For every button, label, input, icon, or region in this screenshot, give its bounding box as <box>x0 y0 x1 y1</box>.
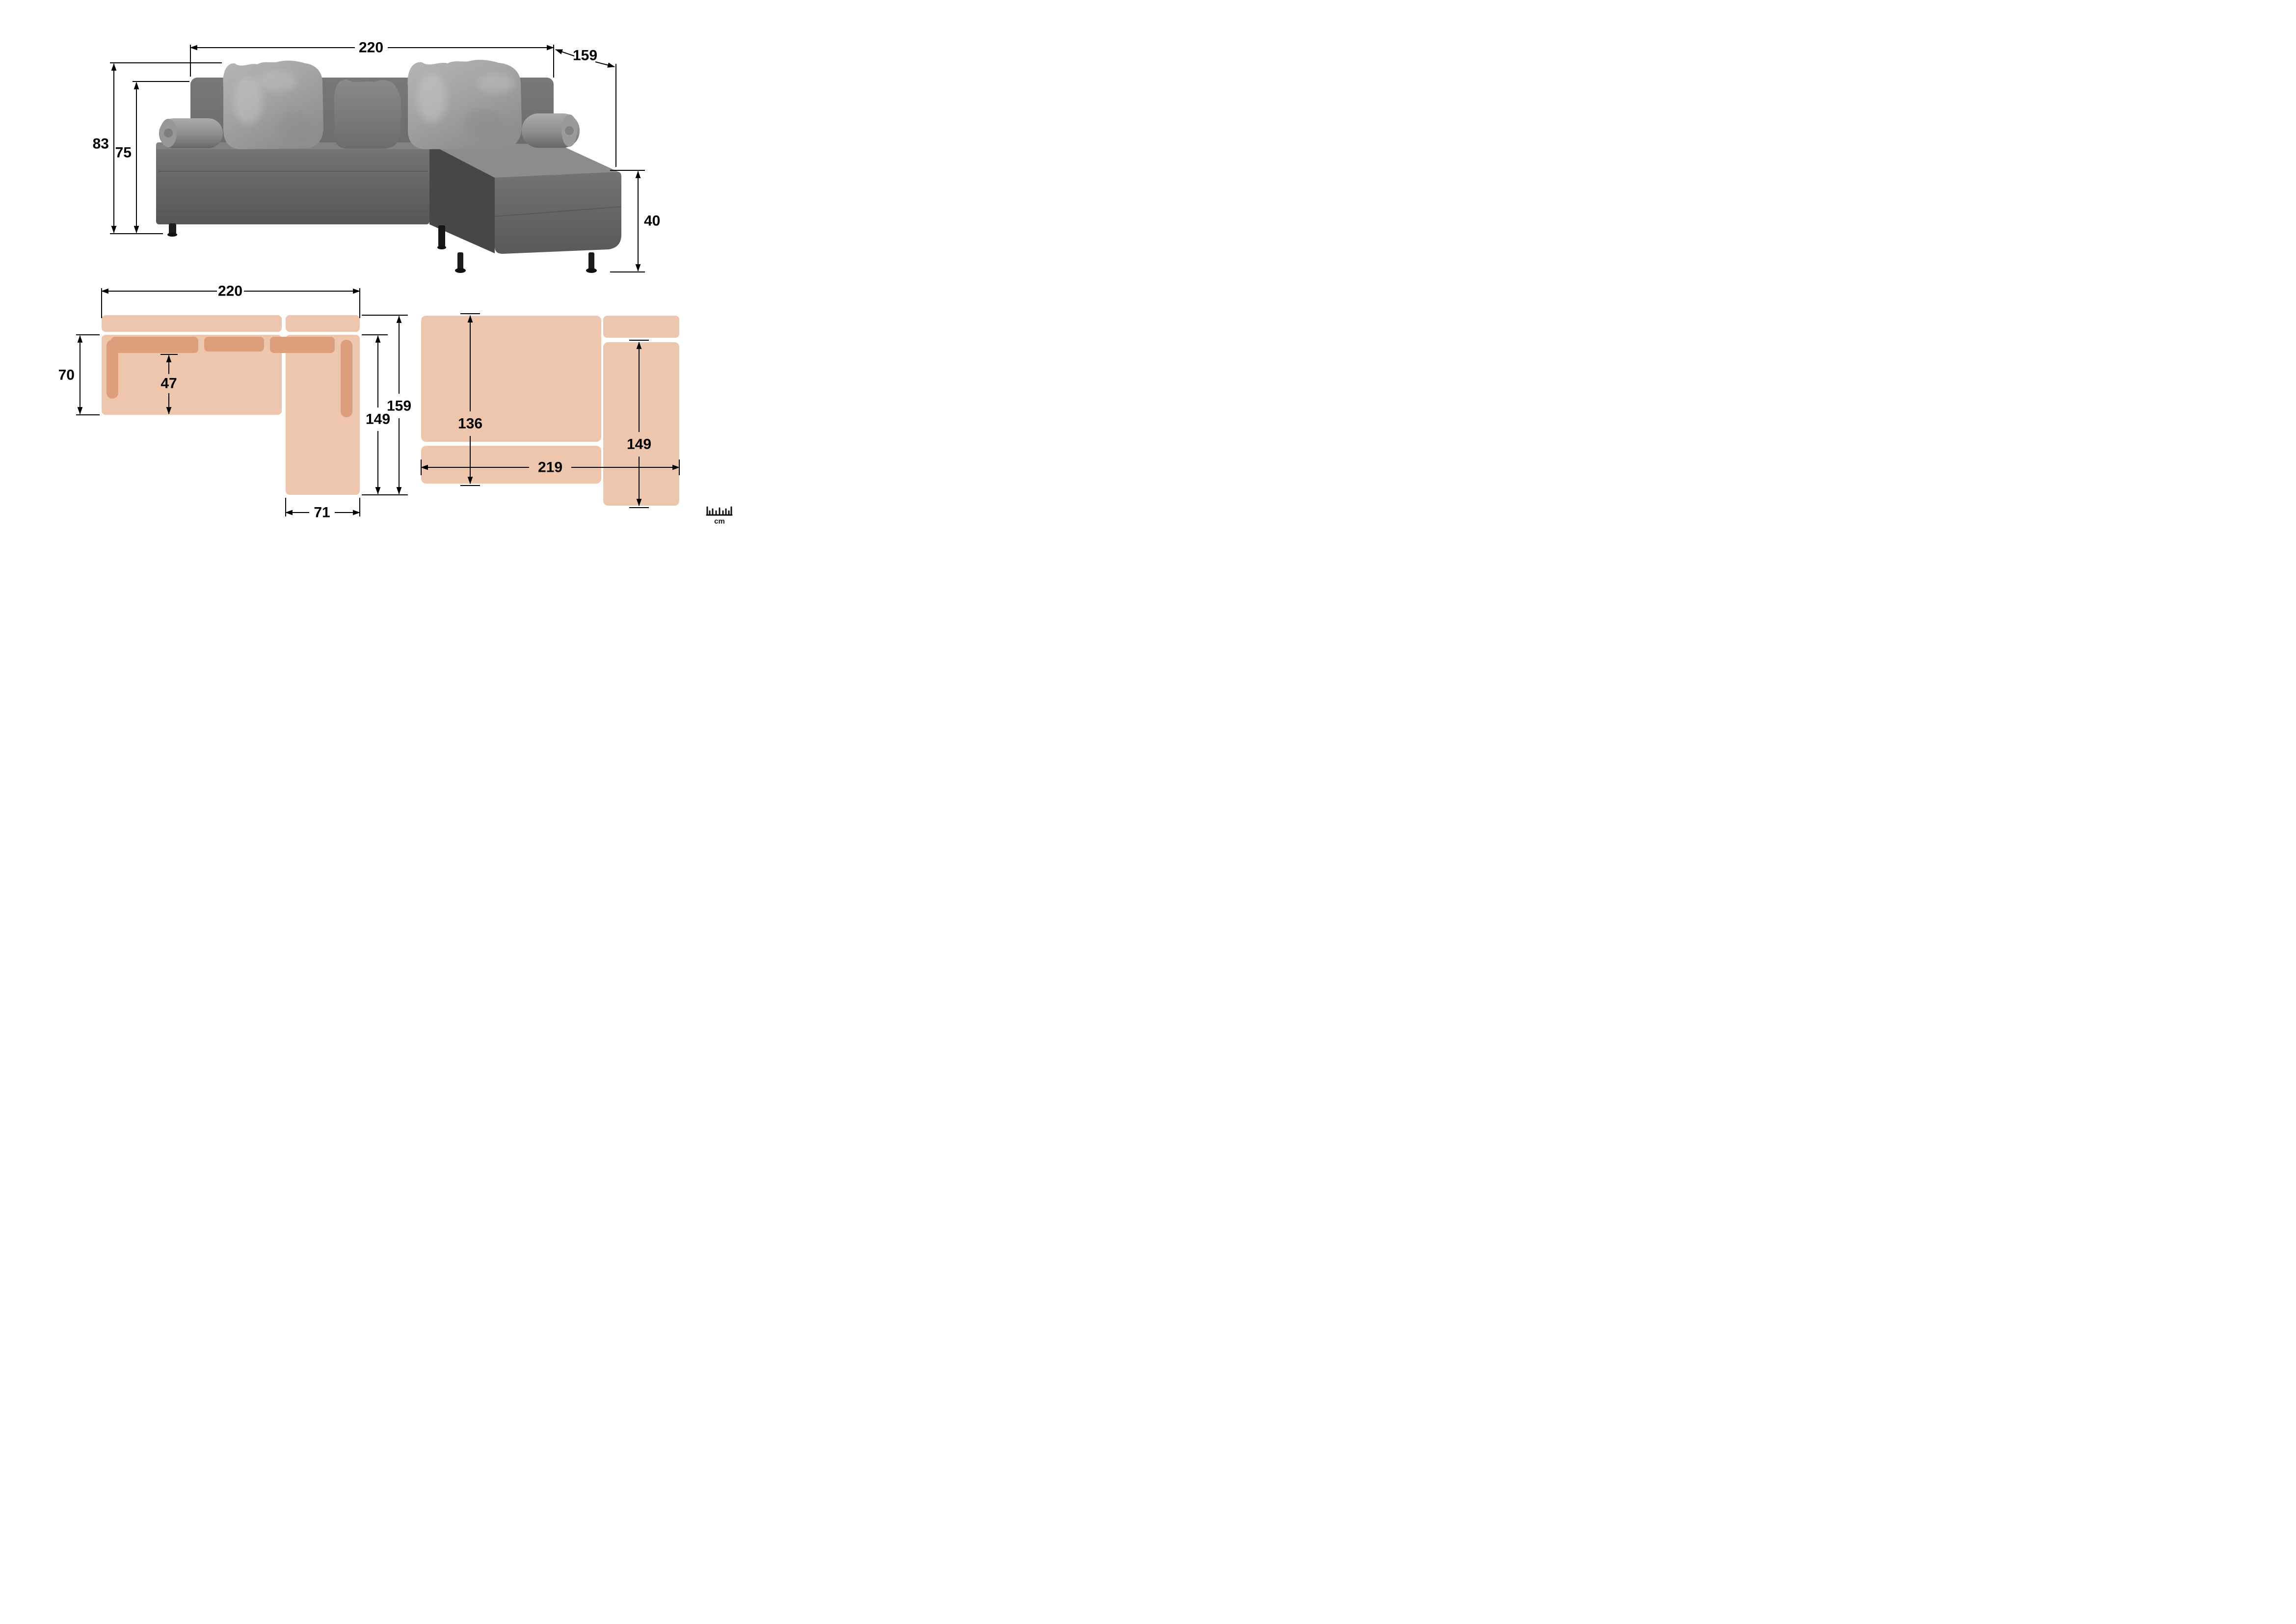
ruler-unit-label: cm <box>714 517 725 526</box>
chaise-right-leg <box>588 252 594 270</box>
sofa-top-cushion-3 <box>270 337 335 353</box>
pillow-middle-small <box>334 80 401 149</box>
sofa-top-seat-depth-label: 70 <box>58 367 75 383</box>
sofa-top-bolster-right <box>341 340 352 417</box>
bed-main-section <box>421 316 601 442</box>
ruler-scale-icon <box>707 507 732 515</box>
sofa-top-cushion-2 <box>204 337 264 352</box>
front-backrest-height-label: 75 <box>115 145 132 161</box>
front-middle-foot <box>437 245 446 249</box>
bed-right-length-label: 149 <box>627 436 651 453</box>
sofa-top-bolster-left <box>107 340 118 399</box>
dimension-sofa-top-width: 220 <box>102 283 360 319</box>
bolster-left-swirl <box>164 129 173 137</box>
front-left-leg <box>169 223 176 234</box>
sofa-top-backrest-right <box>286 315 360 332</box>
top-view-bed: 136 149 219 <box>421 314 679 508</box>
pillow-texture <box>278 110 311 140</box>
dimension-sofa-top-seat-depth: 70 <box>58 335 100 415</box>
pillow-texture <box>233 77 263 124</box>
dimension-sofa-top-chaise-length: 149 <box>362 335 390 494</box>
bed-front-section <box>421 446 601 484</box>
pillow-texture <box>258 70 297 92</box>
sofa-top-backrest-left <box>102 315 282 332</box>
chaise-left-leg <box>457 252 463 270</box>
bed-right-section <box>603 342 679 506</box>
sofa-top-total-depth-label: 159 <box>387 398 411 414</box>
sofa-top-chaise-width-label: 71 <box>314 505 330 521</box>
sofa-top-cushion-front-label: 47 <box>160 376 177 392</box>
front-left-foot <box>167 233 177 237</box>
sofa-front-view: 220 159 83 75 <box>93 40 661 273</box>
pillow-texture <box>477 74 514 93</box>
chaise-front-face <box>495 172 621 254</box>
furniture-dimension-diagram: 220 159 83 75 <box>0 0 770 544</box>
front-middle-leg <box>438 225 445 247</box>
top-view-sofa: 220 70 47 149 <box>58 283 411 521</box>
dimension-sofa-top-chaise-width: 71 <box>286 498 360 521</box>
chaise-seat-height-label: 40 <box>644 213 660 229</box>
pillow-texture <box>464 109 503 136</box>
bed-width-label: 136 <box>458 416 482 432</box>
dimension-sofa-top-total-depth: 159 <box>362 315 411 495</box>
chaise-right-foot <box>586 268 597 273</box>
bolster-right-swirl <box>565 126 574 135</box>
front-width-label: 220 <box>359 40 383 56</box>
front-total-height-label: 83 <box>93 136 109 152</box>
sofa-top-cushion-1 <box>111 337 198 353</box>
sofa-top-width-label: 220 <box>218 283 242 299</box>
bed-length-label: 219 <box>538 460 562 476</box>
front-chaise-depth-label: 159 <box>573 48 597 64</box>
pillow-texture <box>417 74 447 123</box>
chaise-left-foot <box>455 268 466 273</box>
bed-head-section <box>603 316 679 338</box>
diagram-svg: 220 159 83 75 <box>0 0 770 544</box>
